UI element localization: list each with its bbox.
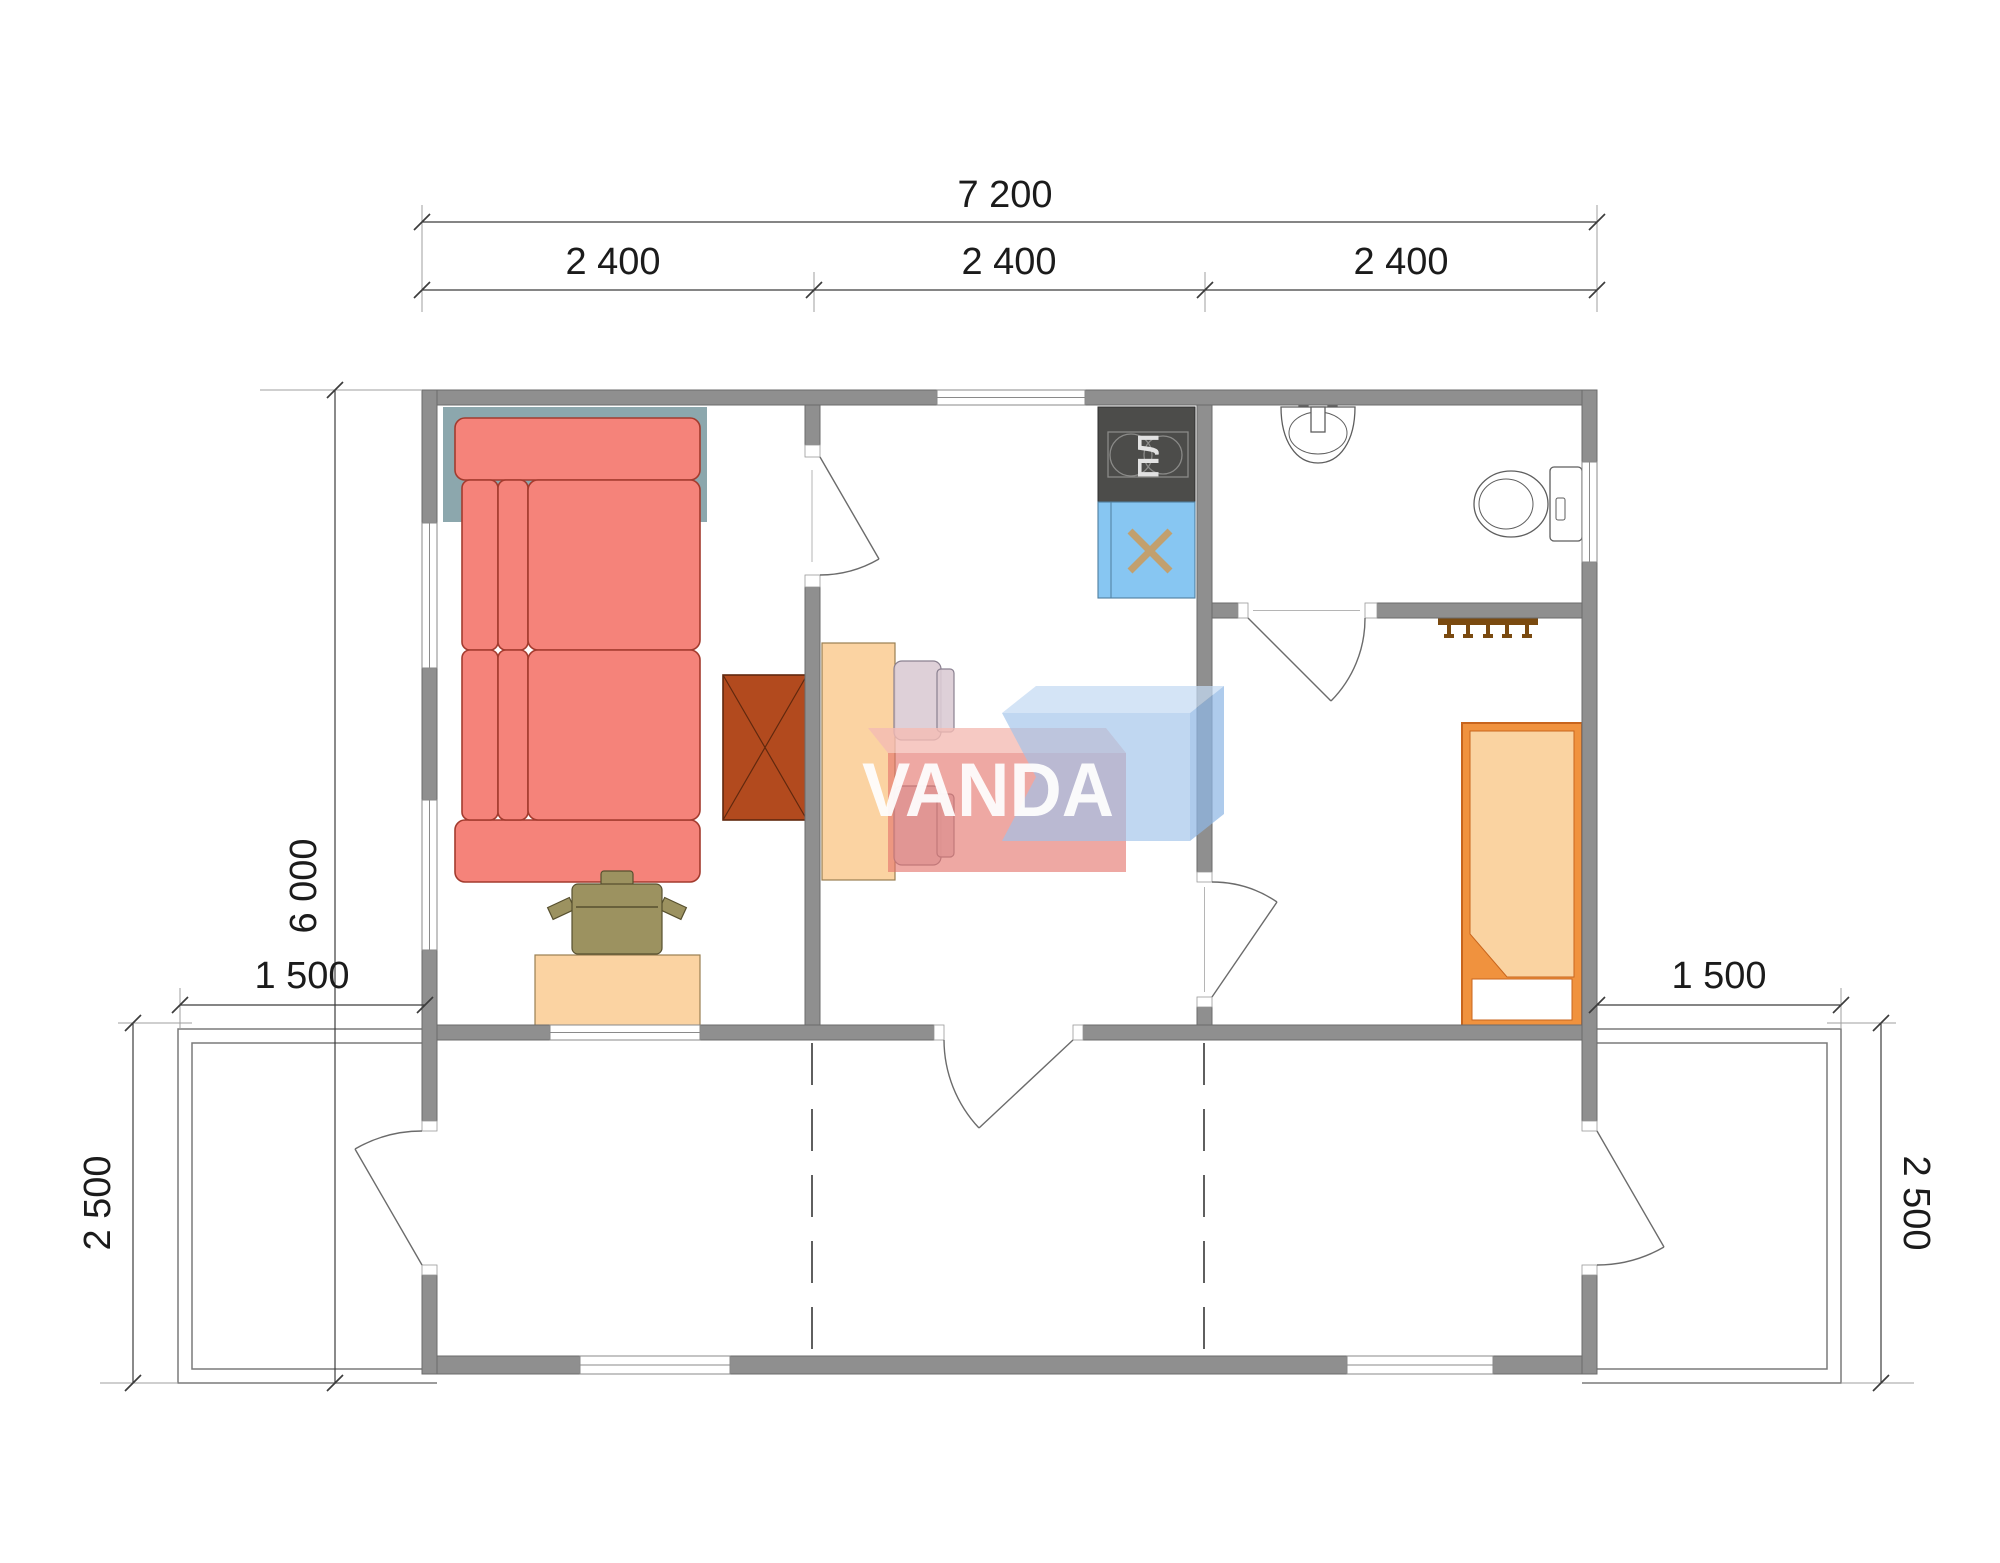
dim-label: 2 400 bbox=[565, 241, 660, 283]
sofa bbox=[443, 407, 707, 882]
dim-label: 2 400 bbox=[1353, 241, 1448, 283]
door-kitchen-bedroom bbox=[1205, 882, 1278, 997]
window bbox=[550, 1025, 700, 1040]
window bbox=[580, 1356, 730, 1374]
bathroom-divider-wall bbox=[1212, 603, 1238, 618]
watermark-blue-box-side bbox=[1190, 686, 1224, 841]
right-wall bbox=[1582, 1275, 1597, 1374]
door-living-kitchen bbox=[812, 457, 879, 575]
dim-depth-left: 6 000 bbox=[260, 382, 422, 1391]
veranda-divider-wall bbox=[437, 1025, 550, 1040]
living-kitchen-wall bbox=[805, 587, 820, 1025]
office-chair bbox=[548, 871, 687, 954]
wardrobe bbox=[723, 675, 807, 820]
kitchen-bedroom-wall bbox=[1197, 1007, 1212, 1025]
dim-label: 1 500 bbox=[1671, 955, 1766, 997]
dim-label: 2 500 bbox=[77, 1155, 119, 1250]
stove-label: ПЛ bbox=[1133, 432, 1166, 479]
dim-deck-left-width: 1 500 bbox=[172, 955, 433, 1029]
left-wall bbox=[422, 950, 437, 1121]
stove: ПЛ bbox=[1098, 407, 1195, 502]
watermark-blue-box-top bbox=[1002, 686, 1224, 713]
veranda-front-wall bbox=[1493, 1356, 1582, 1374]
desk bbox=[535, 955, 700, 1027]
door-entrance bbox=[944, 1040, 1073, 1128]
right-wall bbox=[1582, 562, 1597, 1121]
living-kitchen-wall bbox=[805, 405, 820, 445]
bathroom-sink bbox=[1281, 398, 1355, 463]
dim-deck-right-width: 1 500 bbox=[1589, 955, 1849, 1029]
window bbox=[937, 390, 1085, 405]
door-bathroom bbox=[1248, 611, 1365, 702]
bed bbox=[1462, 723, 1584, 1030]
left-wall bbox=[422, 390, 437, 523]
veranda-front-wall bbox=[730, 1356, 1347, 1374]
left-wall bbox=[422, 668, 437, 800]
veranda-divider-wall bbox=[1083, 1025, 1582, 1040]
dim-label: 2 400 bbox=[961, 241, 1056, 283]
dim-deck-left-depth: 2 500 bbox=[77, 1015, 192, 1391]
window bbox=[422, 800, 437, 950]
kitchen-sink-cabinet bbox=[1098, 502, 1195, 598]
door-deck-left bbox=[355, 1131, 422, 1265]
veranda-divider-wall bbox=[700, 1025, 934, 1040]
coat-rack bbox=[1438, 616, 1538, 638]
dim-label: 1 500 bbox=[254, 955, 349, 997]
floor-plan-sheet: ПЛ bbox=[0, 0, 2000, 1563]
dim-label: 2 500 bbox=[1895, 1155, 1937, 1250]
dim-deck-right-depth: 2 500 bbox=[1827, 1015, 1937, 1391]
left-wall bbox=[422, 1275, 437, 1374]
window bbox=[1347, 1356, 1493, 1374]
toilet bbox=[1474, 467, 1582, 541]
watermark-text: VANDA bbox=[862, 748, 1114, 833]
bathroom-divider-wall bbox=[1377, 603, 1582, 618]
veranda-column-dashes bbox=[812, 1043, 1204, 1356]
window bbox=[1582, 462, 1597, 562]
deck-left bbox=[178, 1029, 437, 1383]
deck-right bbox=[1582, 1029, 1841, 1383]
dim-label: 7 200 bbox=[957, 174, 1052, 216]
window bbox=[422, 523, 437, 668]
veranda-front-wall bbox=[437, 1356, 580, 1374]
right-wall bbox=[1582, 390, 1597, 462]
door-deck-right bbox=[1597, 1131, 1664, 1265]
dim-label: 6 000 bbox=[283, 838, 325, 933]
dim-top-segments: 2 400 2 400 2 400 bbox=[414, 241, 1605, 312]
floor-plan-drawing: ПЛ bbox=[0, 0, 2000, 1563]
